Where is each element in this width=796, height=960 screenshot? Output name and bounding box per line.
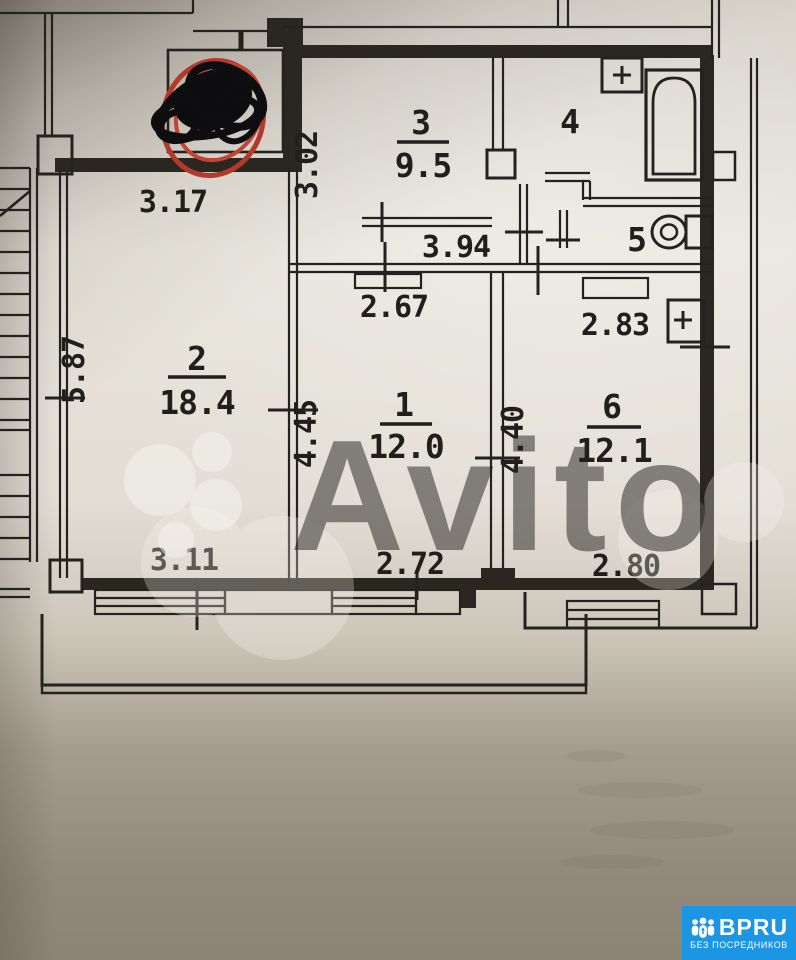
bathtub-icon (646, 70, 702, 180)
dim-room1-top: 2.67 (360, 290, 428, 325)
dim-room6-top: 2.83 (581, 308, 649, 343)
kitchen-sink-icon (668, 300, 704, 342)
bleed-through-text (560, 750, 734, 869)
bpru-tagline: БЕЗ ПОСРЕДНИКОВ (690, 940, 788, 950)
windows-and-balconies (42, 584, 757, 693)
dim-room2-left: 5.87 (57, 336, 92, 404)
bpru-people-icon (690, 917, 716, 939)
room-3-area: 9.5 (395, 146, 452, 185)
avito-watermark: Avito (124, 408, 784, 660)
room-5-number: 5 (627, 220, 647, 259)
room-3-number: 3 (411, 103, 431, 142)
bathroom-sink-icon (602, 58, 642, 92)
watermark-text: Avito (290, 408, 719, 584)
room-2-area: 18.4 (159, 383, 235, 422)
fixtures (602, 58, 712, 342)
floor-plan-photo: 3.17 3.02 3 9.5 4 5 3.94 2.67 2.83 2 18.… (0, 0, 796, 960)
bpru-brand-text: BPRU (719, 916, 788, 939)
dim-room2-top: 3.17 (139, 185, 207, 220)
floor-plan-drawing: 3.17 3.02 3 9.5 4 5 3.94 2.67 2.83 2 18.… (0, 0, 796, 960)
staircase (0, 168, 37, 562)
bpru-badge: BPRU БЕЗ ПОСРЕДНИКОВ (682, 906, 796, 960)
room-2-number: 2 (187, 339, 207, 378)
room-4-number: 4 (560, 102, 580, 141)
balcony-right (525, 584, 757, 628)
dim-room3-left: 3.02 (290, 131, 325, 199)
dim-corridor: 3.94 (422, 230, 490, 265)
